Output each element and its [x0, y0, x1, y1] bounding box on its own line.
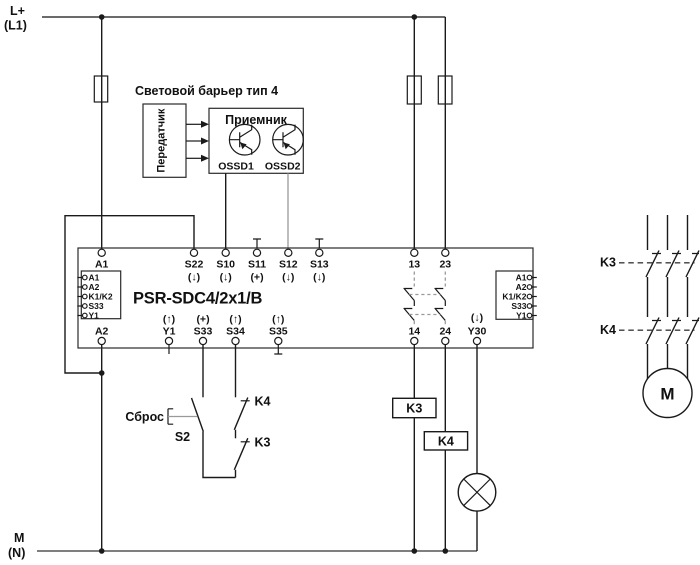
rail-label-lplus: L+ [10, 4, 25, 18]
terminal-label: 23 [439, 259, 451, 271]
terminal-annotation: (↓) [471, 312, 483, 324]
right-connector-pin: A1 [516, 273, 527, 283]
terminal-annotation: (↑) [229, 314, 241, 326]
terminal-annotation: (↓) [188, 272, 200, 284]
terminal-annotation: (↑) [163, 314, 175, 326]
output-circuit: K3 K4 [393, 345, 496, 551]
receiver-label: Приемник [225, 113, 288, 127]
terminal-label: 24 [439, 326, 451, 338]
right-connector-pin: K1/K2 [502, 292, 526, 302]
top-power-rail: L+ (L1) [4, 4, 445, 33]
relay-bottom-terminals: A2 (↑) Y1 (+) S33 (↑) S34 (↑) S35 14 24 … [95, 312, 487, 345]
terminal-label: S33 [194, 326, 213, 338]
transistor-icon [229, 124, 260, 155]
terminal-annotation: (↓) [313, 272, 325, 284]
motor-circuit: K3 K4 M [600, 215, 699, 418]
terminal-label: A2 [95, 326, 109, 338]
terminal-label: S10 [216, 259, 235, 271]
light-barrier: Световой барьер тип 4 Передатчик Приемни… [135, 84, 303, 249]
motor-label: M [660, 385, 674, 404]
terminal-label: S22 [185, 259, 204, 271]
terminal-label: S13 [310, 259, 329, 271]
terminal-annotation: (↑) [272, 314, 284, 326]
right-connector-pin: A2 [516, 282, 527, 292]
reset-button-label: S2 [175, 430, 190, 444]
reset-button-blade [192, 398, 204, 432]
terminal-label: A1 [95, 259, 109, 271]
contactor-k4-label: K4 [600, 323, 616, 337]
left-connector-pin: A2 [89, 282, 100, 292]
terminal-annotation: (+) [250, 272, 263, 284]
lamp-icon [458, 474, 496, 512]
relay-model: PSR-SDC4/2x1/B [133, 290, 263, 308]
schematic-svg: L+ (L1) M (N) Световой барьер тип 4 Пере… [0, 0, 700, 565]
right-connector-pin: S33 [511, 301, 526, 311]
terminal-label: S34 [226, 326, 245, 338]
ossd2-label: OSSD2 [265, 161, 301, 173]
bottom-power-rail: M (N) [8, 531, 477, 560]
terminal-label: S35 [269, 326, 288, 338]
transmitter-label: Передатчик [156, 108, 168, 172]
feedback-contact-label: K3 [255, 436, 271, 450]
ossd1-label: OSSD1 [218, 161, 254, 173]
right-connector-pin: Y1 [516, 311, 527, 321]
coil-k4-label: K4 [438, 435, 454, 449]
relay-top-terminals: A1 S22 (↓) S10 (↓) S11 (+) S12 (↓) S13 (… [95, 249, 451, 283]
feedback-contact-label: K4 [255, 395, 271, 409]
terminal-annotation: (+) [196, 314, 209, 326]
left-connector-pin: K1/K2 [89, 292, 113, 302]
terminal-label: S12 [279, 259, 298, 271]
left-connector-block: A1 A2 K1/K2 S33 Y1 [77, 271, 120, 321]
terminal-annotation: (↓) [220, 272, 232, 284]
wiring-diagram: L+ (L1) M (N) Световой барьер тип 4 Пере… [0, 0, 700, 565]
coil-k3-label: K3 [406, 402, 422, 416]
rail-label-l1: (L1) [4, 19, 27, 33]
right-connector-block: A1 A2 K1/K2 S33 Y1 [496, 271, 537, 321]
rail-label-m: M [14, 531, 24, 545]
beam-arrow-icons [186, 121, 209, 162]
safety-relay-module: PSR-SDC4/2x1/B A1 A2 K1/K2 S33 Y1 A1 A2 … [77, 239, 537, 354]
terminal-label: Y1 [163, 326, 176, 338]
left-connector-pin: S33 [89, 301, 104, 311]
left-connector-pin: Y1 [89, 311, 100, 321]
terminal-label: 14 [408, 326, 420, 338]
terminal-label: Y30 [468, 326, 487, 338]
terminal-label: S11 [248, 259, 266, 271]
terminal-annotation: (↓) [282, 272, 294, 284]
light-barrier-title: Световой барьер тип 4 [135, 84, 278, 98]
reset-circuit: Сброс S2 K4 K3 [125, 345, 270, 478]
contactor-k3-label: K3 [600, 256, 616, 270]
reset-label: Сброс [125, 410, 164, 424]
rail-label-n: (N) [8, 546, 25, 560]
left-connector-pin: A1 [89, 273, 100, 283]
motor-icon: M [643, 369, 692, 418]
transistor-icon [273, 124, 304, 155]
terminal-label: 13 [408, 259, 420, 271]
internal-contacts [404, 272, 446, 328]
